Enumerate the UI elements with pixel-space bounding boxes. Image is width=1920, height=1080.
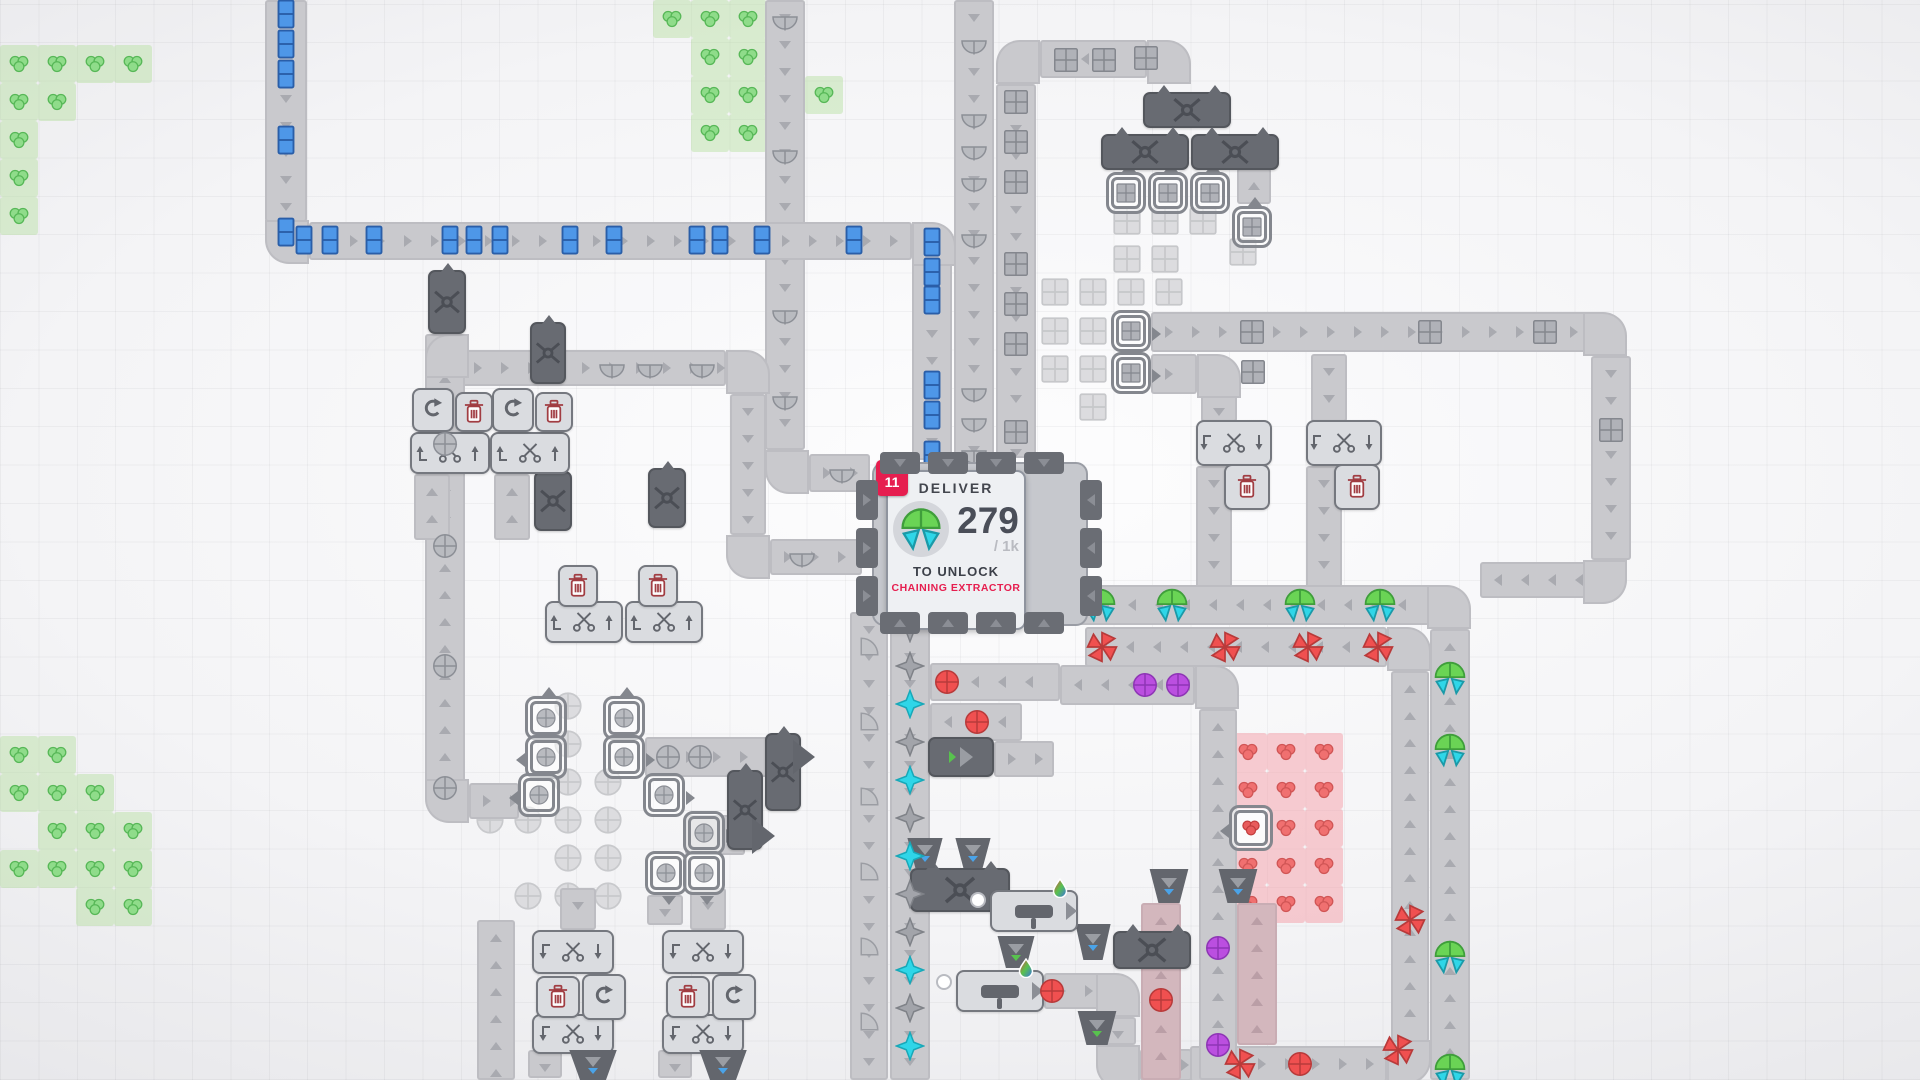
belt-chevron [490,934,502,942]
green-shape-node-icon [44,856,70,882]
belt-chevron [1323,395,1335,403]
green-shape-node-icon [811,82,837,108]
shape-gpin [895,651,925,681]
shape-blue [599,225,629,255]
resource-tile-green [653,0,691,38]
conveyor-belt[interactable] [1391,671,1429,1042]
cut-output-arrow-icon [629,609,649,635]
belt-chevron [863,734,875,742]
extracted-resource-icon [1114,181,1138,205]
trash-machine[interactable] [536,976,580,1018]
merger-input-arrow [1166,127,1180,136]
resource-tile-green [114,888,152,926]
port-direction-icon [715,1057,731,1067]
extractor-machine[interactable] [525,696,567,740]
cut-output-arrow-icon [549,609,569,635]
cut-output-arrow-icon [679,609,699,635]
unmined-circle-resource [511,879,545,913]
belt-chevron [490,1069,502,1077]
unmined-square-resource [1114,275,1148,309]
hub-level-value: 11 [885,475,900,489]
shape-half [787,542,817,572]
conveyor-belt[interactable] [1311,354,1347,422]
belt-chevron [1339,1058,1347,1070]
conveyor-belt[interactable] [1480,562,1587,598]
unmined-square-resource [1076,390,1110,424]
belt-chevron [1213,408,1225,416]
belt-corner[interactable] [1427,585,1471,629]
red-shape-node-icon [1235,777,1261,803]
extractor-machine[interactable] [518,773,560,817]
belt-chevron [1209,599,1217,611]
shape-umb [1154,587,1190,623]
rotator-machine[interactable] [412,388,454,432]
hub-connector [1080,528,1102,568]
launch-arrow-icon [793,740,815,774]
shape-gpin [895,993,925,1023]
belt-chevron [280,203,292,211]
extractor-output-arrow [620,687,634,696]
extractor-inner-ring [1116,357,1146,389]
trash-machine[interactable] [535,392,573,432]
belt-corner[interactable] [1583,560,1627,604]
belt-chevron [1516,326,1524,338]
extractor-inner-ring [608,701,640,735]
extractor-machine[interactable] [683,851,725,895]
green-shape-node-icon [735,120,761,146]
resource-tile-green [729,114,767,152]
belt-chevron [1404,766,1416,774]
belt-chevron [1165,326,1173,338]
red-shape-node-icon [1311,815,1337,841]
conveyor-belt[interactable] [1151,312,1587,352]
crossed-arrows-icon [1125,931,1179,969]
extractor-machine[interactable] [603,735,645,779]
extracted-resource-icon [1156,181,1180,205]
merger-machine[interactable] [1113,931,1191,969]
belt-port-machine[interactable] [1073,924,1113,960]
belt-chevron [1010,206,1022,214]
resource-tile-green [729,38,767,76]
conveyor-belt[interactable] [528,1050,562,1078]
rotator-machine[interactable] [582,974,626,1020]
belt-chevron [1258,1058,1266,1070]
resource-tile-green [805,76,843,114]
extractor-machine[interactable] [1190,172,1230,214]
shape-blue [359,225,389,255]
merger-machine[interactable] [1143,92,1231,128]
shape-sq [1051,45,1081,75]
scissors-icon [560,1021,586,1047]
belt-chevron [779,338,791,346]
scissors-icon [517,440,543,466]
belt-chevron [1128,599,1136,611]
trash-machine[interactable] [455,392,493,432]
belt-chevron [1605,505,1617,513]
merger-machine[interactable] [648,468,686,528]
cutter-machine[interactable] [545,601,623,643]
belt-corner[interactable] [1096,973,1140,1017]
unmined-circle-resource [591,841,625,875]
crossed-arrows-icon [650,478,684,518]
extractor-inner-ring [648,778,680,812]
conveyor-belt[interactable] [1201,394,1237,422]
shape-redc [932,667,962,697]
shape-blue [917,285,947,315]
cut-output-arrow-icon [1249,430,1269,456]
belt-chevron [1444,778,1456,786]
port-direction-icon [965,845,981,855]
belt-chevron [1404,874,1416,882]
merger-input-arrow [1115,127,1129,136]
merger-input-arrow [1208,85,1222,94]
cutter-machine[interactable] [532,1014,614,1054]
unmined-square-resource [1076,352,1110,386]
rainbow-paint-drop-icon [1018,958,1034,978]
belt-corner[interactable] [1195,665,1239,709]
belt-corner[interactable] [765,450,809,494]
belt-chevron [539,1064,551,1072]
belt-chevron [1212,966,1224,974]
resource-tile-green [0,83,38,121]
resource-tile-green [76,888,114,926]
belt-chevron [1085,985,1093,997]
merger-machine[interactable] [428,270,466,334]
trash-icon [1233,473,1261,501]
belt-corner[interactable] [1096,1045,1140,1080]
conveyor-belt[interactable] [730,394,766,535]
resource-tile-green [38,736,76,774]
resource-tile-green [729,76,767,114]
shape-sq [1001,329,1031,359]
extractor-machine[interactable] [1229,805,1273,851]
extractor-machine[interactable] [1111,352,1151,394]
belt-chevron [1489,326,1497,338]
shape-half [959,29,989,59]
scissors-icon [690,1021,716,1047]
extractor-machine[interactable] [603,696,645,740]
red-shape-node-icon [1273,853,1299,879]
merger-input-arrow [1126,924,1140,933]
hub[interactable]: LVL 11 DELIVER 279 / 1k TO UNLOCK CHAINI… [856,446,1102,642]
shape-redc [1285,1049,1315,1079]
red-shape-node-icon [1311,777,1337,803]
belt-chevron [1101,679,1109,691]
green-shape-node-icon [82,51,108,77]
crossed-arrows-icon [532,333,564,373]
belt-chevron [1212,1020,1224,1028]
rainbow-paint-drop-icon [1052,878,1068,898]
cutter-machine[interactable] [1306,420,1382,466]
conveyor-belt[interactable] [494,474,530,540]
shape-blue [747,225,777,255]
belt-chevron [1444,697,1456,705]
shape-sq [1001,87,1031,117]
extractor-machine[interactable] [643,773,685,817]
belt-chevron [1318,561,1330,569]
shape-sq [1001,249,1031,279]
trash-machine[interactable] [1334,464,1380,510]
resource-tile-green [114,812,152,850]
extracted-resource-icon [1198,181,1222,205]
scissors-icon [571,609,597,635]
belt-chevron [1444,913,1456,921]
hub-connector [1024,452,1064,474]
painter-machine[interactable] [990,890,1078,932]
red-shape-node-icon [1311,853,1337,879]
belt-port-machine[interactable] [566,1050,620,1080]
extractor-output-arrow [662,896,676,905]
resource-tile-green [38,83,76,121]
red-shape-node-icon [1273,739,1299,765]
shape-umb [1432,1052,1468,1080]
extractor-output-arrow [1220,824,1229,838]
cut-output-arrow-icon [668,1021,688,1047]
belt-chevron [1010,233,1022,241]
trash-machine[interactable] [666,976,710,1018]
port-status-icon [1092,1031,1102,1037]
green-shape-node-icon [44,742,70,768]
merger-machine[interactable] [1191,134,1279,170]
merger-input-arrow [441,263,455,272]
shape-circ [430,651,460,681]
belt-chevron [779,284,791,292]
trash-machine[interactable] [638,565,678,607]
belt-chevron [490,1042,502,1050]
green-shape-node-icon [44,89,70,115]
belt-chevron [474,362,482,374]
belt-chevron [1236,599,1244,611]
cutter-machine[interactable] [532,930,614,974]
conveyor-belt[interactable] [1430,629,1470,1080]
shape-sq [1596,415,1626,445]
belt-chevron [1444,724,1456,732]
extractor-inner-ring [1116,315,1146,347]
belt-chevron [1444,643,1456,651]
extracted-resource-icon [692,821,716,845]
scissors-icon [1221,430,1247,456]
shape-qtr [853,855,883,885]
merger-machine[interactable] [534,471,572,531]
shape-rpin [1381,1033,1415,1067]
belt-chevron [779,68,791,76]
conveyor-belt[interactable] [477,920,515,1080]
shape-blue [839,225,869,255]
belt-chevron [968,365,980,373]
extractor-output-arrow [1152,327,1161,341]
extractor-machine[interactable] [1111,310,1151,352]
shape-blue [271,125,301,155]
shape-umb [1432,939,1468,975]
resource-tile-red [1305,809,1343,847]
unmined-circle-resource [591,879,625,913]
port-status-icon [1088,945,1098,951]
green-shape-node-icon [44,51,70,77]
green-shape-node-icon [82,856,108,882]
belt-chevron [782,235,790,247]
belt-chevron [426,488,438,496]
launcher-arrow-machine[interactable] [752,818,782,854]
shape-blue [917,400,947,430]
extracted-resource-icon [692,861,716,885]
extractor-inner-ring [1234,810,1268,846]
trash-machine[interactable] [1224,464,1270,510]
belt-chevron [1605,478,1617,486]
shape-qtr [853,1005,883,1035]
resource-tile-green [691,0,729,38]
cut-output-arrow-icon [668,939,688,965]
port-status-icon [588,1068,598,1074]
belt-chevron [968,95,980,103]
hub-connector [856,576,878,616]
belt-chevron [1112,1031,1124,1039]
belt-chevron [1153,641,1161,653]
shape-circ [430,773,460,803]
cut-output-arrow-icon [495,440,515,466]
hub-connector [1024,612,1064,634]
shape-gpin [895,803,925,833]
shape-circ [653,742,683,772]
merger-input-arrow [1256,127,1270,136]
shape-redc [1037,976,1067,1006]
launcher-arrow-machine[interactable] [793,740,823,774]
scissors-icon [560,939,586,965]
conveyor-belt[interactable] [658,1050,692,1078]
belt-chevron [779,176,791,184]
trash-machine[interactable] [558,565,598,607]
target-shape-icon [898,506,944,552]
belt-chevron [1404,739,1416,747]
belt-chevron [490,1015,502,1023]
shape-half [959,167,989,197]
painter-machine[interactable] [956,970,1044,1012]
extracted-resource-icon [1240,215,1264,239]
resource-tile-green [0,774,38,812]
belt-corner[interactable] [1583,312,1627,356]
resource-tile-green [729,0,767,38]
shape-blue [555,225,585,255]
cutter-machine[interactable] [662,1014,744,1054]
shape-umb [1432,660,1468,696]
belt-corner[interactable] [726,350,770,394]
extractor-output-arrow [542,687,556,696]
belt-chevron [490,988,502,996]
rotator-machine[interactable] [492,388,534,432]
extractor-inner-ring [530,701,562,735]
belt-chevron [1261,641,1269,653]
belt-chevron [1404,685,1416,693]
rotate-icon [420,397,446,423]
cutter-machine[interactable] [1196,420,1272,466]
green-shape-node-icon [120,894,146,920]
red-shape-node-icon [1273,815,1299,841]
resource-tile-green [76,812,114,850]
green-shape-node-icon [697,82,723,108]
conveyor-belt[interactable] [560,888,596,930]
unmined-circle-resource [551,841,585,875]
resource-tile-green [76,45,114,83]
resource-tile-green [38,774,76,812]
belt-chevron [439,699,451,707]
belt-chevron [1381,326,1389,338]
shape-pur [1203,933,1233,963]
extractor-machine[interactable] [1232,206,1272,248]
merger-input-arrow [1171,924,1185,933]
shape-half [959,135,989,165]
hub-connector [856,480,878,520]
shape-cpin [895,689,925,719]
conveyor-belt[interactable] [1591,356,1631,560]
factory-game-viewport[interactable]: LVL 11 DELIVER 279 / 1k TO UNLOCK CHAINI… [0,0,1920,1080]
cut-output-arrow-icon [588,939,608,965]
belt-port-machine[interactable] [1147,869,1191,903]
extractor-inner-ring [1111,177,1141,209]
sender-machine[interactable] [928,737,994,777]
crossed-arrows-icon [536,481,570,521]
cut-output-arrow-icon [545,440,565,466]
belt-chevron [779,41,791,49]
belt-corner[interactable] [425,334,469,378]
shape-half [959,223,989,253]
extractor-output-arrow [1152,369,1161,383]
extracted-resource-icon [612,706,636,730]
extractor-machine[interactable] [1148,172,1188,214]
belt-chevron [863,896,875,904]
cutter-machine[interactable] [662,930,744,974]
merger-machine[interactable] [1101,134,1189,170]
belt-corner[interactable] [1197,354,1241,398]
extractor-machine[interactable] [1106,172,1146,214]
shape-half [635,353,665,383]
cutter-machine[interactable] [625,601,703,643]
cutter-machine[interactable] [490,432,570,474]
resource-tile-red [1267,771,1305,809]
shape-gpin [895,917,925,947]
extracted-resource-icon [652,783,676,807]
resource-tile-green [0,45,38,83]
belt-chevron [501,362,509,374]
belt-chevron [968,257,980,265]
belt-corner[interactable] [996,40,1040,84]
shape-blue [917,370,947,400]
merger-input-arrow [1205,127,1219,136]
cut-output-arrow-icon [1359,430,1379,456]
belt-chevron [809,235,817,247]
shape-half [827,458,857,488]
belt-chevron [968,203,980,211]
rotator-machine[interactable] [712,974,756,1020]
shape-rpin [1291,630,1325,664]
resource-tile-red [1267,733,1305,771]
extractor-inner-ring [650,856,682,890]
belt-port-machine[interactable] [696,1050,750,1080]
trash-icon [1343,473,1371,501]
port-direction-icon [1008,944,1024,954]
extractor-machine[interactable] [645,851,687,895]
belt-chevron [1444,832,1456,840]
shape-sq [1530,317,1560,347]
extractor-machine[interactable] [683,811,725,855]
shape-rpin [1361,630,1395,664]
hub-connector [976,612,1016,634]
belt-corner[interactable] [726,535,770,579]
extractor-inner-ring [530,740,562,774]
port-status-icon [968,856,978,862]
shape-half [959,103,989,133]
belt-chevron [1248,182,1260,190]
merger-machine[interactable] [530,322,566,384]
conveyor-belt[interactable] [994,741,1054,777]
